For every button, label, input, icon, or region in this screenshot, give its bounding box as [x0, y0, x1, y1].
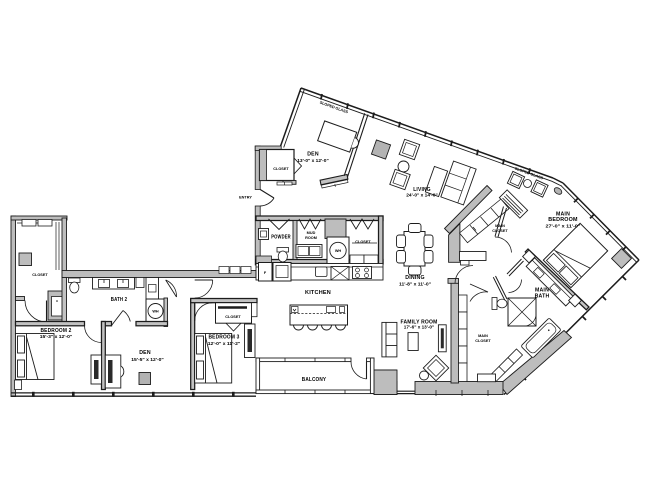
svg-text:MAIN: MAIN: [478, 334, 488, 338]
svg-text:BATH: BATH: [535, 294, 550, 300]
svg-text:ROOM: ROOM: [305, 236, 317, 240]
svg-text:BATH 2: BATH 2: [111, 297, 128, 303]
svg-text:CLOSET: CLOSET: [273, 167, 289, 171]
svg-text:17'-6" x 13'-0": 17'-6" x 13'-0": [404, 325, 435, 330]
svg-text:MAIN: MAIN: [495, 224, 505, 228]
svg-text:ENTRY: ENTRY: [239, 196, 252, 200]
svg-text:WH: WH: [152, 310, 159, 314]
svg-text:12'-0" x 11'-2": 12'-0" x 11'-2": [208, 341, 241, 346]
svg-text:CLOSET: CLOSET: [355, 240, 371, 244]
svg-text:DEN: DEN: [307, 152, 319, 158]
svg-text:BALCONY: BALCONY: [302, 377, 327, 383]
svg-text:27'-0" x 11'-0": 27'-0" x 11'-0": [546, 224, 581, 229]
svg-text:DINING: DINING: [405, 275, 425, 281]
svg-text:CLOSET: CLOSET: [225, 315, 241, 319]
svg-text:BEDROOM: BEDROOM: [548, 217, 578, 223]
svg-text:13'-0" x 12'-0": 13'-0" x 12'-0": [297, 158, 329, 163]
svg-text:CLOSET: CLOSET: [32, 273, 48, 277]
svg-text:WH: WH: [335, 249, 342, 253]
svg-text:15'-3" x 12'-0": 15'-3" x 12'-0": [40, 334, 73, 339]
svg-text:24'-0" x 14'-0": 24'-0" x 14'-0": [406, 193, 438, 198]
svg-text:KITCHEN: KITCHEN: [305, 290, 331, 296]
svg-text:POWDER: POWDER: [271, 235, 291, 241]
svg-text:DEN: DEN: [139, 350, 151, 356]
svg-text:BEDROOM 3: BEDROOM 3: [209, 335, 240, 341]
svg-text:BEDROOM 2: BEDROOM 2: [41, 328, 72, 334]
svg-text:MUD: MUD: [307, 231, 316, 235]
svg-text:15'-5" x 12'-0": 15'-5" x 12'-0": [131, 357, 164, 362]
svg-text:CLOSET: CLOSET: [475, 339, 491, 343]
svg-text:11'-8" x 11'-0": 11'-8" x 11'-0": [399, 282, 431, 287]
svg-text:CLOSET: CLOSET: [492, 229, 508, 233]
